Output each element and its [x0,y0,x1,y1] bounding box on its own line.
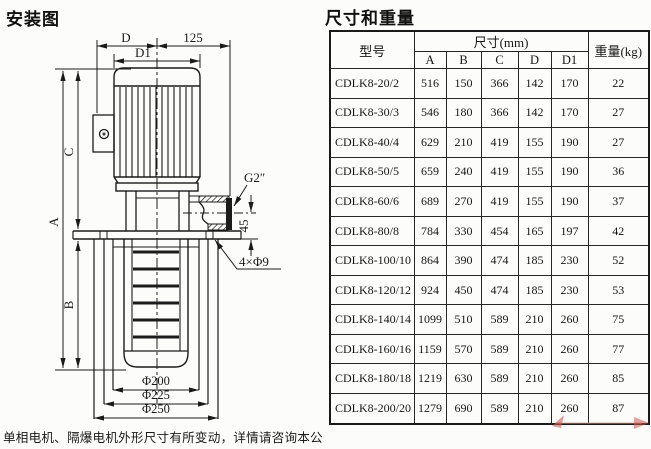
table-row: CDLK8-120/1292445047418523053 [330,275,649,305]
model-cell: CDLK8-60/6 [330,187,414,217]
value-cell: 170 [551,69,588,99]
value-cell: 197 [551,216,588,246]
dim-label-d1: D1 [135,45,151,60]
table-row: CDLK8-100/1086439047418523052 [330,246,649,276]
dim-label-dia250: Φ250 [142,402,170,416]
value-cell: 270 [446,187,481,217]
col-header-c: C [481,52,518,69]
value-cell: 260 [551,334,588,364]
model-cell: CDLK8-50/5 [330,157,414,187]
model-cell: CDLK8-20/2 [330,69,414,99]
value-cell: 510 [446,305,481,335]
table-title: 尺寸和重量 [325,4,415,29]
value-cell: 42 [588,216,649,246]
value-cell: 77 [588,334,649,364]
value-cell: 1219 [414,364,446,394]
value-cell: 180 [446,98,481,128]
port-thread-label: G2″ [244,170,265,185]
table-row: CDLK8-160/16115957058921026077 [330,334,649,364]
value-cell: 864 [414,246,446,276]
spec-table: 型号 尺寸(mm) 重量(kg) A B C D D1 CDLK8-20/251… [329,30,650,425]
value-cell: 185 [518,246,551,276]
value-cell: 589 [481,394,518,424]
value-cell: 22 [588,69,649,99]
value-cell: 366 [481,69,518,99]
value-cell: 1159 [414,334,446,364]
value-cell: 330 [446,216,481,246]
value-cell: 190 [551,187,588,217]
col-header-model: 型号 [330,31,414,69]
value-cell: 474 [481,275,518,305]
value-cell: 85 [588,364,649,394]
model-cell: CDLK8-200/20 [330,394,414,424]
table-header-row: 型号 尺寸(mm) 重量(kg) [330,31,649,52]
dim-label-b: B [61,300,76,309]
value-cell: 419 [481,187,518,217]
value-cell: 260 [551,305,588,335]
value-cell: 390 [446,246,481,276]
value-cell: 52 [588,246,649,276]
model-cell: CDLK8-160/16 [330,334,414,364]
col-header-dims-group: 尺寸(mm) [414,31,588,52]
model-cell: CDLK8-40/4 [330,128,414,158]
value-cell: 185 [518,275,551,305]
footnote: 单相电机、隔爆电机外形尺寸有所变动，详情请咨询本公司。 [3,427,343,449]
dim-label-125: 125 [183,30,203,45]
value-cell: 155 [518,128,551,158]
table-row: CDLK8-40/462921041915519027 [330,128,649,158]
value-cell: 1279 [414,394,446,424]
watermark-arrow-left [552,415,564,428]
model-cell: CDLK8-180/18 [330,364,414,394]
value-cell: 450 [446,275,481,305]
installation-diagram: D 125 D1 [0,0,322,449]
value-cell: 516 [414,69,446,99]
table-row: CDLK8-60/668927041915519037 [330,187,649,217]
value-cell: 36 [588,157,649,187]
col-header-a: A [414,52,446,69]
value-cell: 230 [551,246,588,276]
motor-fins [120,87,192,177]
value-cell: 659 [414,157,446,187]
value-cell: 150 [446,69,481,99]
model-cell: CDLK8-120/12 [330,275,414,305]
value-cell: 630 [446,364,481,394]
table-row: CDLK8-180/18121963058921026085 [330,364,649,394]
dim-label-d: D [121,30,130,45]
col-header-d1: D1 [551,52,588,69]
value-cell: 190 [551,128,588,158]
table-row: CDLK8-50/565924041915519036 [330,157,649,187]
table-row: CDLK8-30/354618036614217027 [330,98,649,128]
model-cell: CDLK8-140/14 [330,305,414,335]
value-cell: 155 [518,157,551,187]
value-cell: 210 [518,334,551,364]
impeller-stages [133,252,179,337]
table-row: CDLK8-80/878433045416519742 [330,216,649,246]
col-header-d: D [518,52,551,69]
table-row: CDLK8-140/14109951058921026075 [330,305,649,335]
model-cell: CDLK8-30/3 [330,98,414,128]
value-cell: 27 [588,128,649,158]
watermark [528,412,651,436]
value-cell: 454 [481,216,518,246]
value-cell: 210 [446,128,481,158]
model-cell: CDLK8-100/10 [330,246,414,276]
value-cell: 589 [481,364,518,394]
value-cell: 260 [551,364,588,394]
value-cell: 75 [588,305,649,335]
value-cell: 419 [481,157,518,187]
bolt-holes-label: 4×Φ9 [239,254,269,269]
value-cell: 589 [481,305,518,335]
value-cell: 419 [481,128,518,158]
value-cell: 230 [551,275,588,305]
value-cell: 366 [481,98,518,128]
value-cell: 165 [518,216,551,246]
table-row: CDLK8-20/251615036614217022 [330,69,649,99]
value-cell: 546 [414,98,446,128]
value-cell: 589 [481,334,518,364]
value-cell: 142 [518,98,551,128]
value-cell: 53 [588,275,649,305]
value-cell: 190 [551,157,588,187]
value-cell: 240 [446,157,481,187]
catalog-page: 安装图 尺寸和重量 D [0,0,651,449]
value-cell: 155 [518,187,551,217]
value-cell: 27 [588,98,649,128]
dim-label-dia225: Φ225 [142,388,170,402]
spec-table-body: CDLK8-20/251615036614217022CDLK8-30/3546… [330,69,649,425]
value-cell: 689 [414,187,446,217]
top-dimensions [97,40,230,196]
value-cell: 570 [446,334,481,364]
model-cell: CDLK8-80/8 [330,216,414,246]
col-header-b: B [446,52,481,69]
dim-label-dia200: Φ200 [142,374,170,388]
value-cell: 474 [481,246,518,276]
dim-label-c: C [61,148,76,157]
watermark-arrow-right [634,417,649,429]
value-cell: 210 [518,305,551,335]
port-leader-line [234,185,247,206]
value-cell: 629 [414,128,446,158]
value-cell: 37 [588,187,649,217]
value-cell: 142 [518,69,551,99]
junction-box [93,115,114,152]
value-cell: 924 [414,275,446,305]
value-cell: 784 [414,216,446,246]
col-header-weight: 重量(kg) [588,31,649,69]
dim-label-a: A [46,217,61,227]
value-cell: 690 [446,394,481,424]
value-cell: 1099 [414,305,446,335]
value-cell: 170 [551,98,588,128]
value-cell: 210 [518,364,551,394]
